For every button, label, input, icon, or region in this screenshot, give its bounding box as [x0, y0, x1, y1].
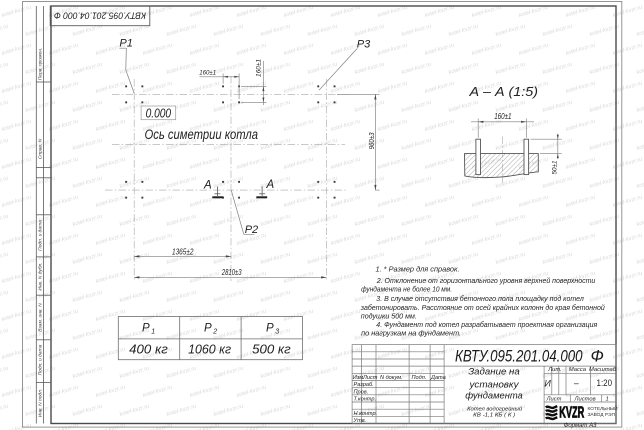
svg-text:Листов: Листов — [574, 397, 596, 403]
svg-text:Дата: Дата — [430, 375, 446, 381]
svg-text:Ф: Ф — [591, 347, 604, 366]
svg-text:Р: Р — [204, 323, 212, 335]
svg-text:Инв. N дубл.: Инв. N дубл. — [38, 262, 44, 290]
svg-text:Р1: Р1 — [119, 38, 132, 50]
svg-text:А: А — [266, 179, 275, 191]
svg-text:Р: Р — [266, 323, 274, 335]
svg-text:Н.контр.: Н.контр. — [354, 411, 378, 417]
svg-text:1060 кг: 1060 кг — [188, 343, 231, 357]
svg-text:Формат А3: Формат А3 — [564, 423, 597, 429]
svg-text:160±1: 160±1 — [256, 59, 263, 77]
svg-text:Подп.: Подп. — [412, 375, 427, 381]
svg-text:Лит.: Лит. — [547, 367, 562, 373]
svg-text:И: И — [544, 378, 551, 388]
svg-text:50±1: 50±1 — [551, 160, 558, 174]
svg-text:фундамента: фундамента — [465, 391, 523, 401]
svg-text:КВ -1,1 КБ ( К ): КВ -1,1 КБ ( К ) — [473, 413, 515, 419]
svg-text:Разраб.: Разраб. — [354, 382, 374, 388]
svg-text:0.000: 0.000 — [146, 105, 172, 120]
svg-text:1: 1 — [606, 397, 609, 403]
svg-text:Пров.: Пров. — [354, 389, 369, 395]
svg-text:960±3: 960±3 — [367, 132, 376, 150]
svg-text:400 кг: 400 кг — [129, 343, 168, 357]
svg-text:А – А (1:5): А – А (1:5) — [468, 84, 538, 99]
svg-text:2: 2 — [212, 328, 217, 335]
svg-text:Подп. и дата: Подп. и дата — [38, 220, 44, 251]
svg-text:1:20: 1:20 — [597, 378, 613, 388]
svg-text:160±1: 160±1 — [494, 112, 511, 121]
svg-text:1365±2: 1365±2 — [172, 247, 194, 256]
svg-text:Утв.: Утв. — [353, 418, 367, 424]
svg-text:160±1: 160±1 — [199, 69, 216, 76]
svg-text:3. В случае отсутствия бетонно: 3. В случае отсутствия бетонного пола пл… — [376, 294, 584, 303]
svg-text:Лист: Лист — [362, 375, 378, 381]
svg-text:Задание на: Задание на — [468, 367, 520, 377]
svg-text:Ось симетрии котла: Ось симетрии котла — [145, 127, 259, 142]
svg-text:Справ. N: Справ. N — [38, 138, 44, 159]
svg-text:3: 3 — [275, 328, 279, 335]
svg-text:1: 1 — [151, 328, 155, 335]
svg-text:Перв. примен.: Перв. примен. — [38, 48, 44, 81]
svg-text:Котел водогрейный: Котел водогрейный — [467, 405, 523, 412]
svg-text:Т.контр.: Т.контр. — [354, 397, 377, 403]
svg-text:установку: установку — [468, 379, 520, 389]
svg-text:Р3: Р3 — [357, 38, 371, 50]
svg-text:KVZR: KVZR — [559, 405, 584, 422]
svg-text:фундамента не более 10 мм.: фундамента не более 10 мм. — [361, 285, 452, 294]
svg-text:1. * Размер для справок.: 1. * Размер для справок. — [376, 264, 460, 273]
svg-text:по нагрузкам на фундамент.: по нагрузкам на фундамент. — [361, 328, 461, 337]
svg-text:Р: Р — [142, 323, 150, 335]
svg-text:А: А — [203, 180, 212, 192]
svg-text:Взам. инв. N: Взам. инв. N — [38, 303, 44, 332]
svg-text:500 кг: 500 кг — [252, 343, 291, 357]
svg-text:ЗАВОД РЭП: ЗАВОД РЭП — [588, 412, 616, 418]
svg-text:Лист: Лист — [546, 397, 562, 403]
svg-text:КВТУ.095.201.04.000: КВТУ.095.201.04.000 — [455, 347, 583, 366]
svg-text:КВТУ.095.201.04.000 Ф: КВТУ.095.201.04.000 Ф — [54, 11, 146, 21]
svg-text:Инв. N подл.: Инв. N подл. — [38, 389, 44, 418]
svg-text:–: – — [573, 378, 579, 388]
svg-text:N докум.: N докум. — [380, 375, 403, 381]
svg-text:2810±3: 2810±3 — [221, 268, 242, 277]
svg-text:Подп. и дата: Подп. и дата — [38, 344, 44, 375]
svg-text:Масса: Масса — [569, 367, 587, 373]
svg-text:Масштаб: Масштаб — [589, 367, 617, 373]
